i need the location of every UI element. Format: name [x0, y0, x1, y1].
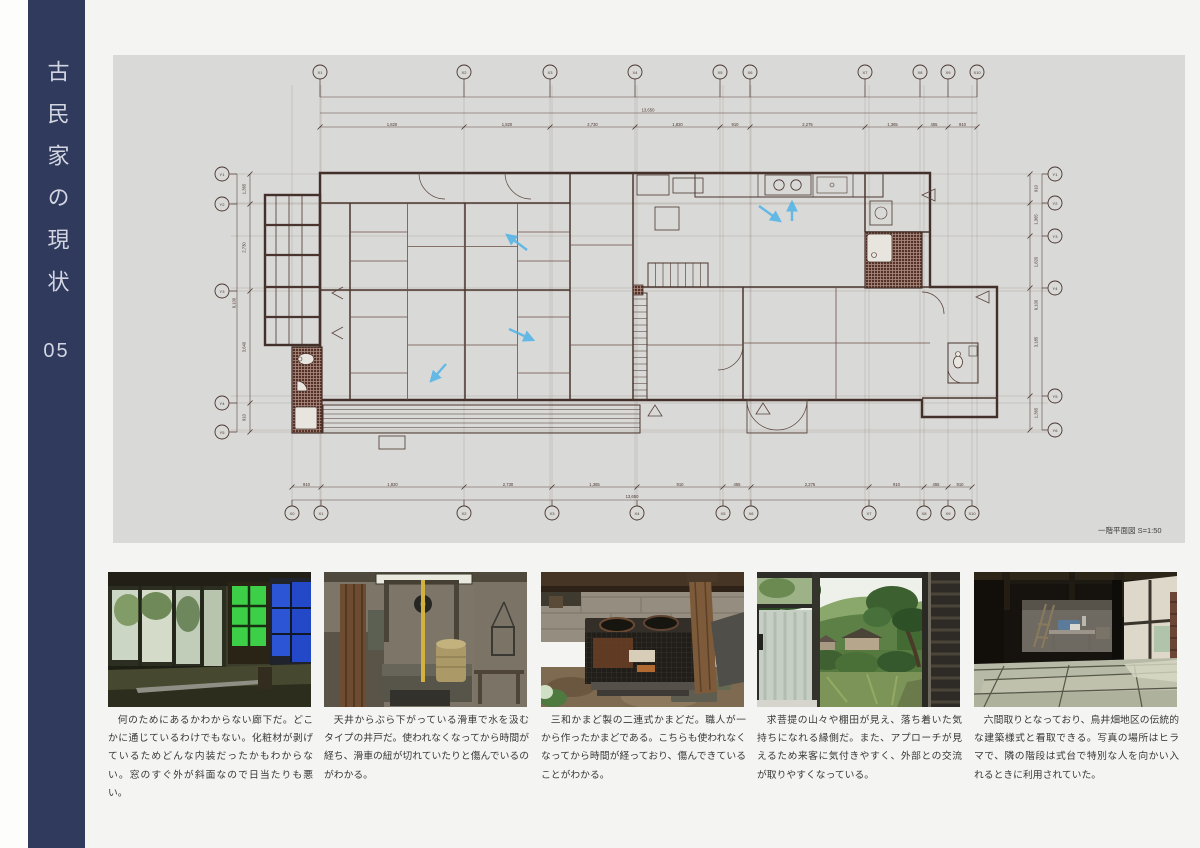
- svg-text:Y5: Y5: [220, 430, 226, 435]
- caption-engawa: 求菩提の山々や棚田が見え、落ち着いた気持ちになれる縁側だ。また、アプローチが見え…: [757, 712, 962, 785]
- svg-text:1,365: 1,365: [887, 122, 898, 127]
- svg-text:Y5: Y5: [1053, 394, 1059, 399]
- west-toilet-block: [292, 347, 322, 433]
- southeast-toilet: [948, 343, 978, 383]
- svg-text:2,275: 2,275: [802, 122, 813, 127]
- wooden-shutter: [928, 572, 960, 707]
- kamado-stove: [585, 616, 695, 696]
- svg-text:1,820: 1,820: [502, 122, 513, 127]
- tatami-floor: [974, 658, 1177, 707]
- svg-text:1,365: 1,365: [1034, 214, 1039, 225]
- svg-text:455: 455: [931, 122, 939, 127]
- svg-text:2,275: 2,275: [805, 482, 816, 487]
- svg-text:X5: X5: [718, 70, 724, 75]
- svg-text:X4: X4: [633, 70, 639, 75]
- construction-grid: [231, 85, 1048, 507]
- svg-text:1,365: 1,365: [1034, 407, 1039, 418]
- svg-text:X4: X4: [635, 511, 641, 516]
- svg-text:X7: X7: [863, 70, 869, 75]
- svg-text:X6: X6: [749, 511, 755, 516]
- svg-text:Y1: Y1: [220, 172, 226, 177]
- bath-block: [865, 232, 922, 288]
- svg-text:1,820: 1,820: [387, 482, 398, 487]
- photo-tatami-room: [974, 572, 1177, 707]
- svg-text:Y3: Y3: [1053, 234, 1059, 239]
- svg-text:910: 910: [677, 482, 685, 487]
- outer-walls: [265, 173, 997, 417]
- corridor-windows: [108, 586, 226, 672]
- svg-text:Y6: Y6: [1053, 428, 1059, 433]
- flow-arrows: [431, 202, 792, 381]
- svg-text:X1: X1: [319, 511, 325, 516]
- dimension-lines: [237, 97, 1042, 500]
- svg-text:3,640: 3,640: [242, 341, 247, 352]
- svg-text:910: 910: [242, 413, 247, 421]
- presentation-page: 古民家の現状 05: [0, 0, 1200, 848]
- caption-well: 天井からぶら下がっている滑車で水を汲むタイプの井戸だ。使われなくなってから時間が…: [324, 712, 529, 785]
- svg-text:Y1: Y1: [1053, 172, 1059, 177]
- svg-text:1,820: 1,820: [387, 122, 398, 127]
- svg-text:2,730: 2,730: [587, 122, 598, 127]
- svg-text:910: 910: [893, 482, 901, 487]
- svg-text:Y4: Y4: [1053, 286, 1059, 291]
- sidebar: 古民家の現状 05: [28, 0, 85, 848]
- left-margin: [0, 0, 28, 848]
- svg-text:1,365: 1,365: [242, 183, 247, 194]
- svg-text:455: 455: [933, 482, 941, 487]
- svg-text:910: 910: [957, 482, 965, 487]
- caption-tatami: 六間取りとなっており、鳥井畑地区の伝統的な建築様式と看取できる。写真の場所はヒラ…: [974, 712, 1179, 785]
- caption-kamado: 三和かまど製の二連式かまどだ。職人が一から作ったかまどである。こちらも使われなく…: [541, 712, 746, 785]
- svg-text:X6: X6: [748, 70, 754, 75]
- frosted-glass-door: [757, 578, 815, 706]
- svg-text:1,820: 1,820: [672, 122, 683, 127]
- yellow-pole: [421, 580, 425, 682]
- svg-text:3,185: 3,185: [1034, 336, 1039, 347]
- svg-text:910: 910: [1034, 184, 1039, 192]
- svg-text:13,650: 13,650: [626, 494, 639, 499]
- floor-plan-panel: X11,820X21,820X32,730X41,820X5910X62,275…: [113, 55, 1185, 543]
- svg-text:1,365: 1,365: [589, 482, 600, 487]
- svg-text:9,100: 9,100: [232, 297, 237, 308]
- level-markers: [332, 189, 989, 416]
- svg-text:Y4: Y4: [220, 401, 226, 406]
- photo-kamado: [541, 572, 744, 707]
- svg-text:X7: X7: [867, 511, 873, 516]
- svg-text:X2: X2: [462, 511, 468, 516]
- svg-text:X5: X5: [721, 511, 727, 516]
- svg-text:Y2: Y2: [220, 202, 226, 207]
- svg-text:X1: X1: [318, 70, 324, 75]
- svg-text:Y3: Y3: [220, 289, 226, 294]
- svg-text:910: 910: [303, 482, 311, 487]
- colored-glass-panels: [228, 578, 311, 674]
- svg-text:X8: X8: [918, 70, 924, 75]
- svg-text:9,100: 9,100: [1034, 299, 1039, 310]
- svg-text:910: 910: [732, 122, 740, 127]
- photo-engawa-view: [757, 572, 960, 707]
- plan-caption: 一階平面図 S=1:50: [1098, 525, 1162, 535]
- svg-text:X8: X8: [922, 511, 928, 516]
- svg-text:2,730: 2,730: [503, 482, 514, 487]
- svg-text:X3: X3: [548, 70, 554, 75]
- page-title: 古民家の現状: [41, 60, 73, 312]
- svg-text:2,730: 2,730: [242, 242, 247, 253]
- svg-text:X3: X3: [550, 511, 556, 516]
- engawa-planks: [323, 293, 647, 449]
- svg-text:X9: X9: [946, 511, 952, 516]
- photo-well: [324, 572, 527, 707]
- svg-text:13,650: 13,650: [642, 108, 655, 113]
- wood-post: [340, 584, 366, 707]
- floor-plan: X11,820X21,820X32,730X41,820X5910X62,275…: [113, 55, 1185, 543]
- svg-text:X10: X10: [973, 70, 981, 75]
- svg-text:1,820: 1,820: [1034, 256, 1039, 267]
- svg-text:X9: X9: [946, 70, 952, 75]
- lattice-veranda: [265, 195, 320, 345]
- svg-text:Y2: Y2: [1053, 201, 1059, 206]
- page-number: 05: [28, 340, 85, 363]
- caption-corridor: 何のためにあるかわからない廊下だ。どこかに通じているわけでもない。化粧材が剥げて…: [108, 712, 313, 803]
- svg-text:910: 910: [959, 122, 967, 127]
- photo-corridor: [108, 572, 311, 707]
- stairs: [633, 263, 708, 295]
- svg-text:X0: X0: [290, 511, 296, 516]
- kitchen: [637, 173, 892, 230]
- back-room-clutter: [1022, 600, 1112, 652]
- svg-text:X10: X10: [968, 511, 976, 516]
- svg-text:X2: X2: [462, 70, 468, 75]
- svg-text:455: 455: [734, 482, 742, 487]
